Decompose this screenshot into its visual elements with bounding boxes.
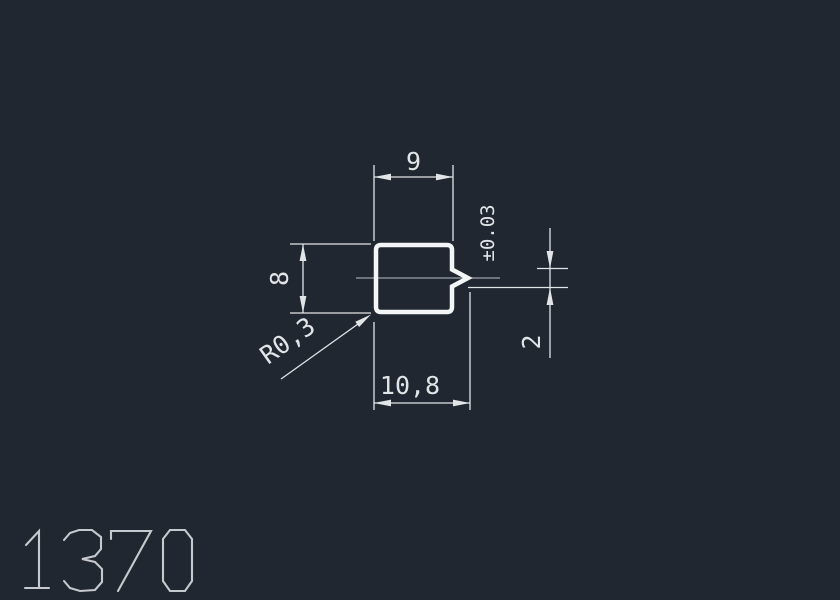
arrowhead-down-icon [300, 296, 307, 313]
arrowhead-left-icon [374, 400, 391, 407]
dimension-text-height: 8 [265, 271, 294, 286]
arrowhead-up-icon [300, 244, 307, 261]
arrowhead-up-icon [547, 288, 554, 306]
dimension-text-radius: R0,3 [255, 311, 321, 370]
profile-number-digit [111, 531, 151, 591]
dimension-text-notch-height: 2 [517, 334, 546, 349]
profile-number [25, 530, 192, 591]
dimension-notch-height: 2 ±0.03 [468, 204, 568, 358]
profile-number-digit [163, 530, 192, 591]
dimension-text-total-width: 10,8 [380, 371, 440, 400]
dimension-total-width: 10,8 [374, 292, 470, 410]
cad-canvas[interactable]: 9 8 R0,3 10,8 [0, 0, 840, 600]
arrowhead-right-icon [436, 174, 453, 181]
leader-arrowhead-icon [355, 315, 371, 328]
arrowhead-left-icon [374, 174, 391, 181]
profile-number-digit [64, 530, 102, 591]
profile-drawing: 9 8 R0,3 10,8 [0, 0, 840, 600]
dimension-height: 8 [265, 244, 371, 313]
radius-callout: R0,3 [255, 311, 371, 379]
dimension-top-width: 9 [374, 147, 453, 241]
profile-number-digit [25, 531, 49, 588]
arrowhead-down-icon [547, 251, 554, 269]
dimension-text-top-width: 9 [406, 147, 421, 176]
arrowhead-right-icon [453, 400, 470, 407]
dimension-text-tolerance: ±0.03 [477, 204, 499, 261]
